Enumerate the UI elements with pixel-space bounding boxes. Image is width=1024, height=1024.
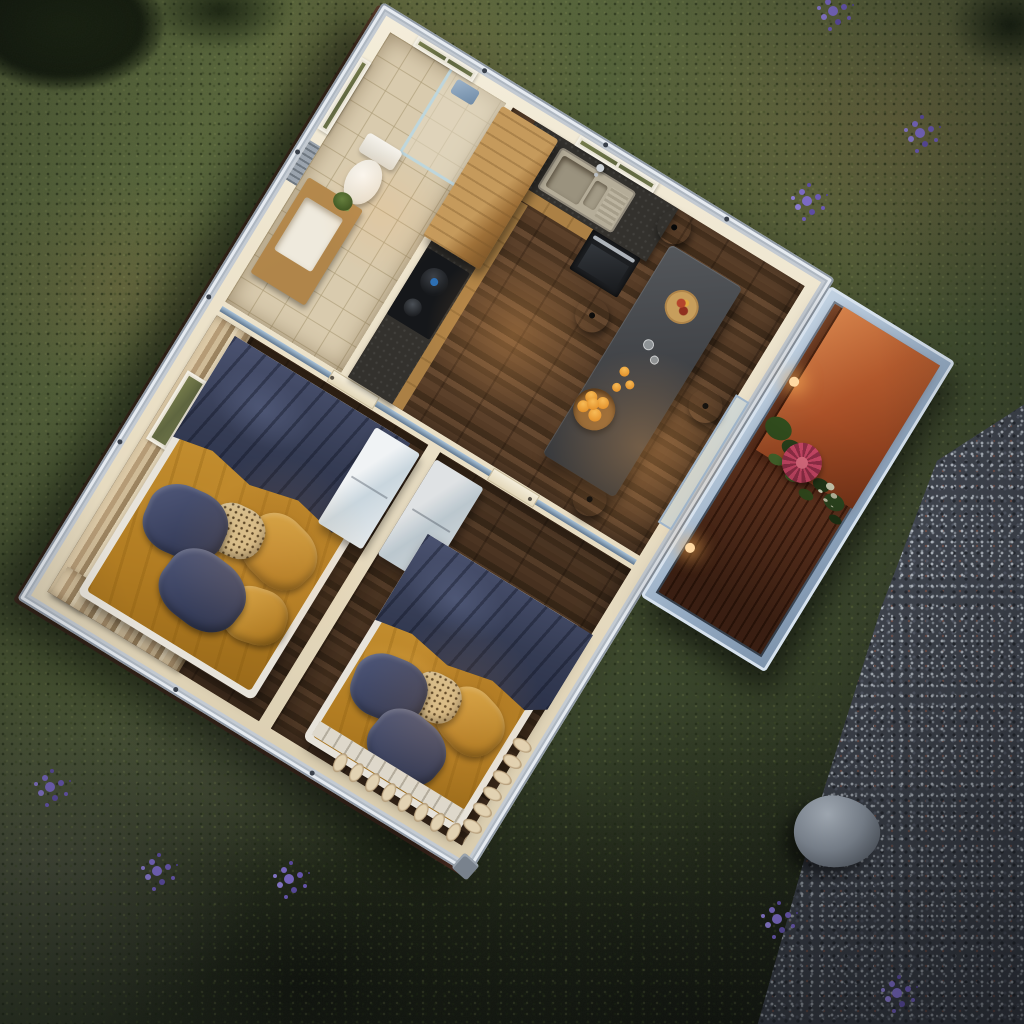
aerial-render-scene xyxy=(0,0,1024,1024)
lavender-cluster xyxy=(772,914,782,924)
lavender-cluster xyxy=(892,988,902,998)
lavender-cluster xyxy=(152,866,162,876)
lavender-cluster xyxy=(802,196,812,206)
lavender-cluster xyxy=(828,6,838,16)
lavender-cluster xyxy=(45,782,55,792)
lavender-cluster xyxy=(915,128,925,138)
lavender-cluster xyxy=(284,874,294,884)
